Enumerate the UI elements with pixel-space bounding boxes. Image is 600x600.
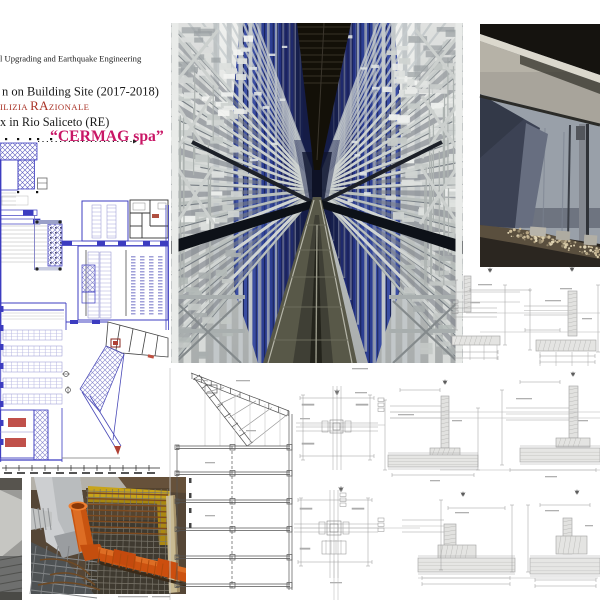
svg-text:“CERMAG spa”: “CERMAG spa”: [50, 128, 164, 145]
svg-text:l Upgrading and Earthquake Eng: l Upgrading and Earthquake Engineering: [0, 54, 142, 64]
svg-text:n on Building Site (2017-2018): n on Building Site (2017-2018): [2, 85, 159, 99]
svg-text:x in Rio Saliceto (RE): x in Rio Saliceto (RE): [0, 115, 109, 129]
